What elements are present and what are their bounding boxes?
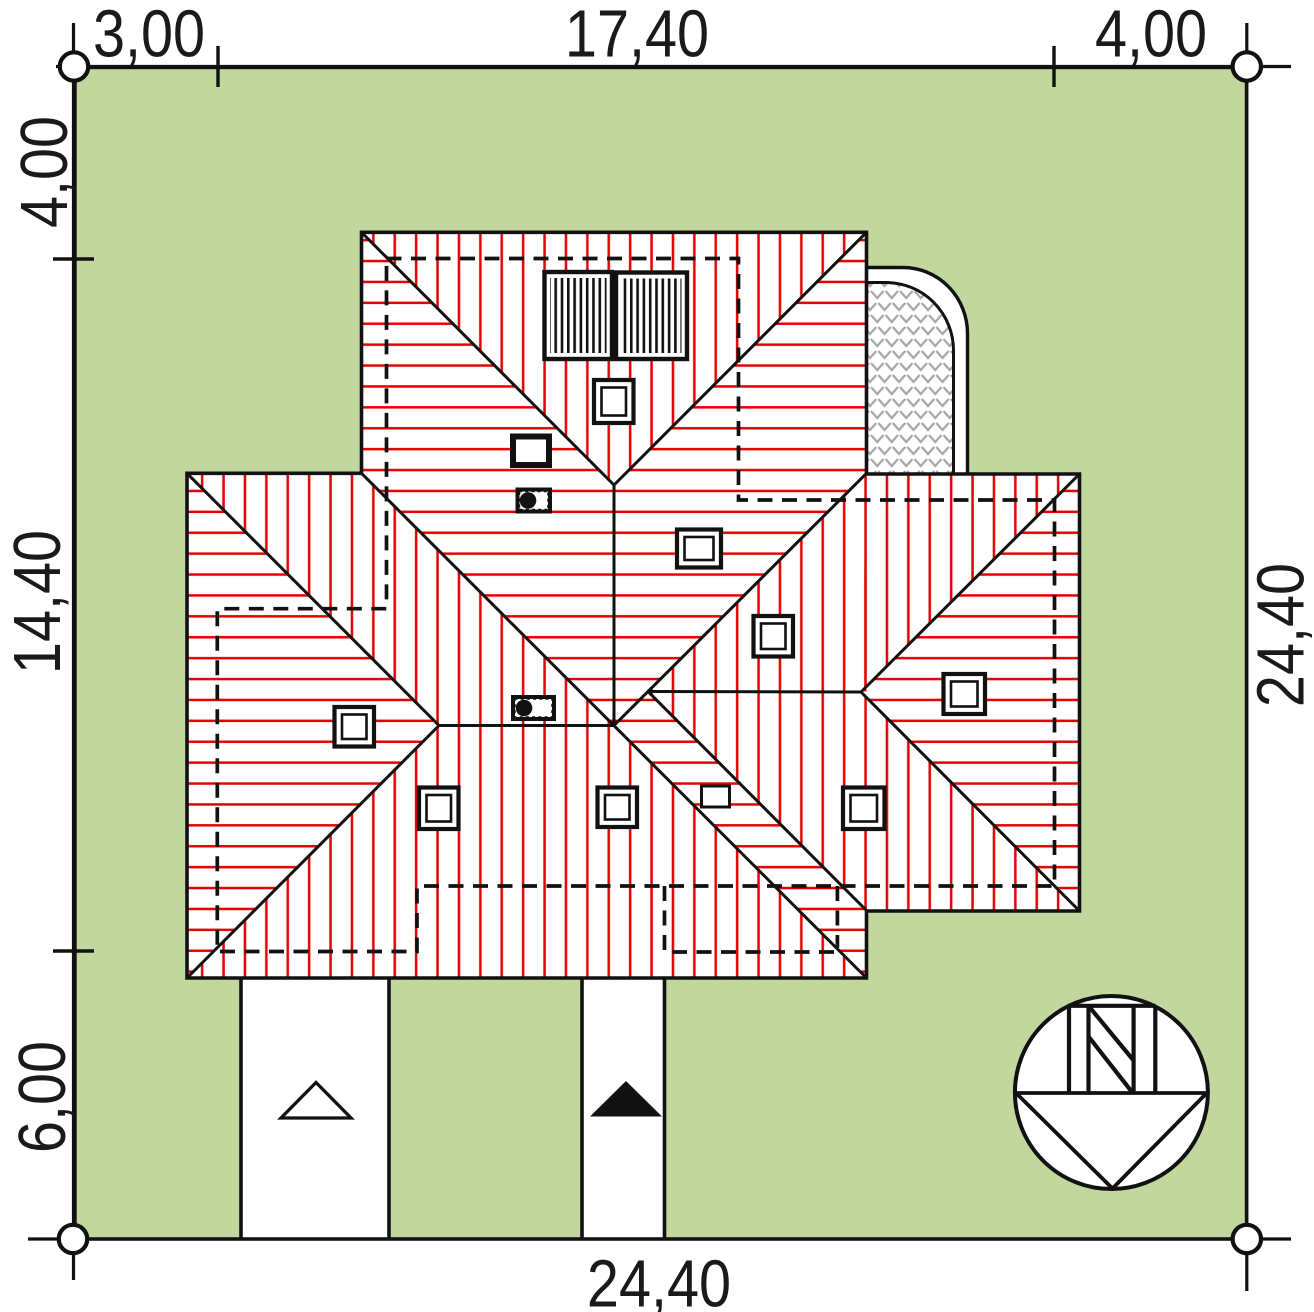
svg-text:6,00: 6,00 bbox=[5, 1041, 80, 1153]
svg-text:14,40: 14,40 bbox=[0, 530, 75, 674]
svg-text:4,00: 4,00 bbox=[7, 116, 82, 228]
svg-text:4,00: 4,00 bbox=[1095, 0, 1207, 72]
svg-text:17,40: 17,40 bbox=[565, 0, 709, 72]
svg-text:24,40: 24,40 bbox=[1243, 563, 1314, 707]
svg-text:24,40: 24,40 bbox=[587, 1246, 731, 1312]
svg-text:3,00: 3,00 bbox=[93, 0, 205, 72]
